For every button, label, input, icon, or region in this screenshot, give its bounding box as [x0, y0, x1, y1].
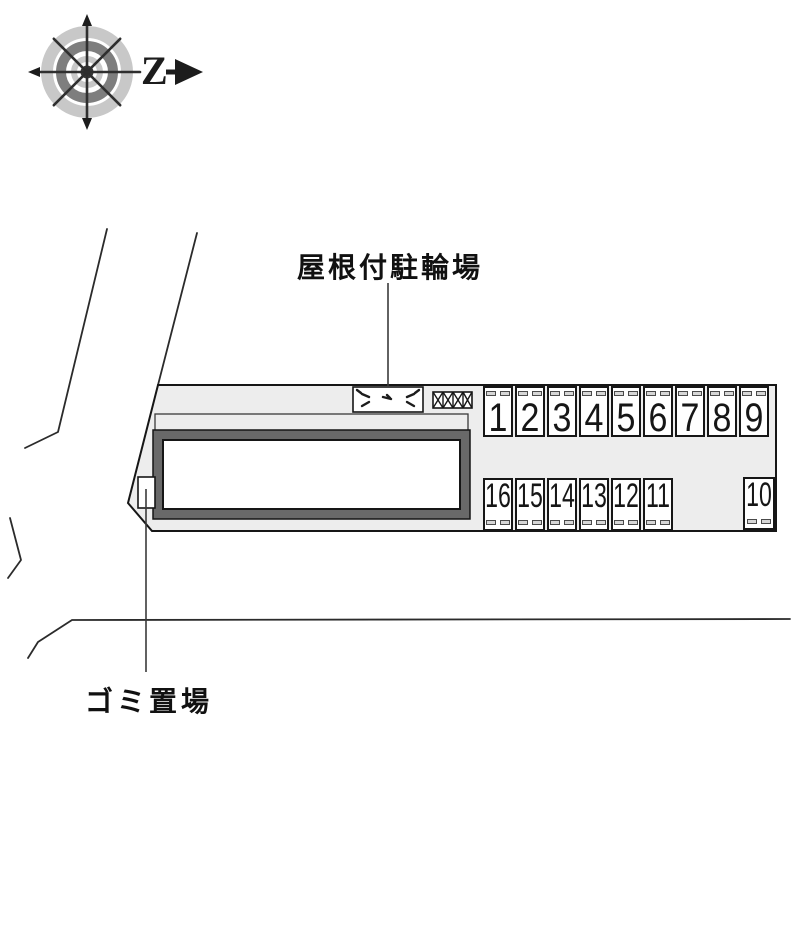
bicycle-parking-icon: [353, 387, 423, 412]
building-walkway-strip: [155, 414, 468, 431]
site-plan-drawing: [0, 0, 800, 941]
site-plan-canvas: Z 屋根付駐輪場 ゴミ置場 1 2 3 4 5 6 7: [0, 0, 800, 941]
parking-space-6: 6: [643, 386, 673, 437]
parking-space-number: 16: [485, 479, 511, 513]
parking-space-9: 9: [739, 386, 769, 437]
parking-row-top: 1 2 3 4 5 6 7 8: [483, 386, 769, 437]
wheel-stop-marks: [550, 520, 574, 525]
parking-space-number: 14: [549, 479, 575, 513]
parking-space-number: 15: [517, 479, 543, 513]
garbage-area-label: ゴミ置場: [85, 680, 213, 720]
parking-space-number: 13: [581, 479, 607, 513]
parking-space-number: 2: [521, 398, 540, 438]
wheel-stop-marks: [582, 520, 606, 525]
road-edge-upper-left: [25, 229, 107, 448]
parking-space-15: 15: [515, 478, 545, 531]
parking-space-number: 7: [681, 398, 700, 438]
parking-space-12: 12: [611, 478, 641, 531]
crosshatch-icon: [433, 392, 472, 408]
bicycle-parking-label: 屋根付駐輪場: [297, 246, 483, 286]
road-edge-lower-left: [8, 518, 21, 578]
parking-space-3: 3: [547, 386, 577, 437]
road-edge-site-left: [158, 233, 197, 385]
parking-space-2: 2: [515, 386, 545, 437]
parking-space-11: 11: [643, 478, 673, 531]
parking-space-number: 9: [745, 398, 764, 438]
road-edge-bottom: [28, 619, 790, 658]
parking-space-number: 10: [746, 478, 772, 512]
wheel-stop-marks: [747, 519, 771, 524]
wheel-stop-marks: [614, 520, 638, 525]
wheel-stop-marks: [646, 520, 670, 525]
parking-space-14: 14: [547, 478, 577, 531]
parking-space-number: 1: [489, 398, 508, 438]
compass-rose-icon: [18, 6, 218, 141]
parking-space-4: 4: [579, 386, 609, 437]
parking-space-number: 8: [713, 398, 732, 438]
parking-space-number: 11: [646, 479, 670, 513]
parking-space-7: 7: [675, 386, 705, 437]
north-arrow-icon: [175, 59, 203, 85]
parking-space-number: 12: [613, 479, 639, 513]
parking-space-number: 5: [617, 398, 636, 438]
parking-space-number: 6: [649, 398, 668, 438]
wheel-stop-marks: [486, 520, 510, 525]
parking-space-5: 5: [611, 386, 641, 437]
parking-space-13: 13: [579, 478, 609, 531]
parking-space-10: 10: [743, 477, 775, 530]
wheel-stop-marks: [518, 520, 542, 525]
parking-space-16: 16: [483, 478, 513, 531]
parking-space-number: 4: [585, 398, 604, 438]
parking-space-1: 1: [483, 386, 513, 437]
building-interior: [163, 440, 460, 509]
parking-space-8: 8: [707, 386, 737, 437]
parking-row-bottom: 16 15 14 13 12 11: [483, 478, 673, 531]
compass-north-letter: Z: [141, 48, 168, 94]
parking-space-number: 3: [553, 398, 572, 438]
